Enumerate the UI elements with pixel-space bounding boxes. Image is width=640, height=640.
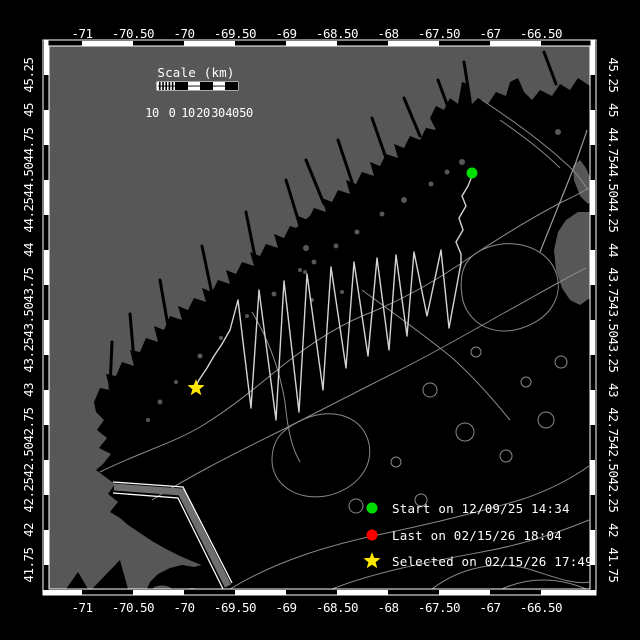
tick-label: -67	[479, 26, 500, 41]
tick-label: 42.25	[606, 477, 621, 512]
legend-last-icon	[367, 530, 378, 541]
scale-label: 50	[239, 106, 253, 120]
tick-label: -67.50	[418, 600, 460, 615]
scale-label: 20	[196, 106, 210, 120]
tick-label: -70	[173, 26, 194, 41]
scale-title: Scale (km)	[157, 65, 234, 80]
legend-start-icon	[367, 503, 378, 514]
tick-label: -66.50	[520, 600, 562, 615]
tick-label: 44.50	[606, 162, 621, 197]
tick-label: 44.25	[606, 197, 621, 232]
tick-label: 42.50	[21, 442, 36, 477]
tick-label: 43	[606, 383, 621, 397]
tick-label: 44	[21, 243, 36, 257]
tick-label: 43.25	[606, 337, 621, 372]
longitude-axis-top: -71 -70.50 -70 -69.50 -69 -68.50 -68 -67…	[71, 26, 562, 41]
tick-label: -69	[275, 26, 296, 41]
tick-label: -69	[275, 600, 296, 615]
drifter-track-map: Scale (km) 10 0 10 20 30 40 50	[0, 0, 640, 640]
tick-label: -71	[71, 26, 92, 41]
tick-label: 43	[21, 383, 36, 397]
tick-label: -67	[479, 600, 500, 615]
latitude-axis-right: 45.25 45 44.75 44.50 44.25 44 43.75 43.5…	[606, 57, 621, 582]
tick-label: 44.25	[21, 197, 36, 232]
tick-label: 42	[606, 523, 621, 537]
map-legend: Start on 12/09/25 14:34 Last on 02/15/26…	[363, 501, 592, 569]
tick-label: -69.50	[214, 600, 256, 615]
scale-label: 0	[169, 106, 176, 120]
scale-label: 40	[225, 106, 239, 120]
longitude-axis-bottom: -71 -70.50 -70 -69.50 -69 -68.50 -68 -67…	[71, 600, 562, 615]
tick-label: -70	[173, 600, 194, 615]
tick-label: 42.50	[606, 442, 621, 477]
tick-label: 43.75	[606, 267, 621, 302]
latitude-axis-left: 45.25 45 44.75 44.50 44.25 44 43.75 43.5…	[21, 57, 36, 582]
tick-label: -68.50	[316, 600, 358, 615]
scale-label: 30	[211, 106, 225, 120]
tick-label: -68.50	[316, 26, 358, 41]
tick-label: -70.50	[112, 600, 154, 615]
tick-label: 45.25	[21, 57, 36, 92]
tick-label: 42	[21, 523, 36, 537]
tick-label: 42.75	[21, 407, 36, 442]
tick-label: -66.50	[520, 26, 562, 41]
tick-label: 42.75	[606, 407, 621, 442]
scale-label: 10	[181, 106, 195, 120]
legend-start-label: Start on 12/09/25 14:34	[392, 501, 570, 516]
tick-label: 44.50	[21, 162, 36, 197]
tick-label: -69.50	[214, 26, 256, 41]
tick-label: 45	[21, 103, 36, 117]
tick-label: 45	[606, 103, 621, 117]
tick-label: 44.75	[606, 127, 621, 162]
tick-label: 45.25	[606, 57, 621, 92]
legend-selected-label: Selected on 02/15/26 17:49	[392, 554, 593, 569]
tick-label: 43.50	[21, 302, 36, 337]
tick-label: 43.25	[21, 337, 36, 372]
tick-label: -67.50	[418, 26, 460, 41]
tick-label: -70.50	[112, 26, 154, 41]
tick-label: 41.75	[606, 547, 621, 582]
tick-label: -68	[377, 26, 398, 41]
tick-label: 43.75	[21, 267, 36, 302]
tick-label: 42.25	[21, 477, 36, 512]
tick-label: 41.75	[21, 547, 36, 582]
start-marker[interactable]	[467, 168, 478, 179]
tick-label: 44	[606, 243, 621, 257]
scale-label: 10	[145, 106, 159, 120]
map-plot-area[interactable]: Scale (km) 10 0 10 20 30 40 50	[49, 46, 594, 597]
tick-label: 44.75	[21, 127, 36, 162]
tick-label: -68	[377, 600, 398, 615]
tick-label: 43.50	[606, 302, 621, 337]
tick-label: -71	[71, 600, 92, 615]
legend-last-label: Last on 02/15/26 18:04	[392, 528, 562, 543]
